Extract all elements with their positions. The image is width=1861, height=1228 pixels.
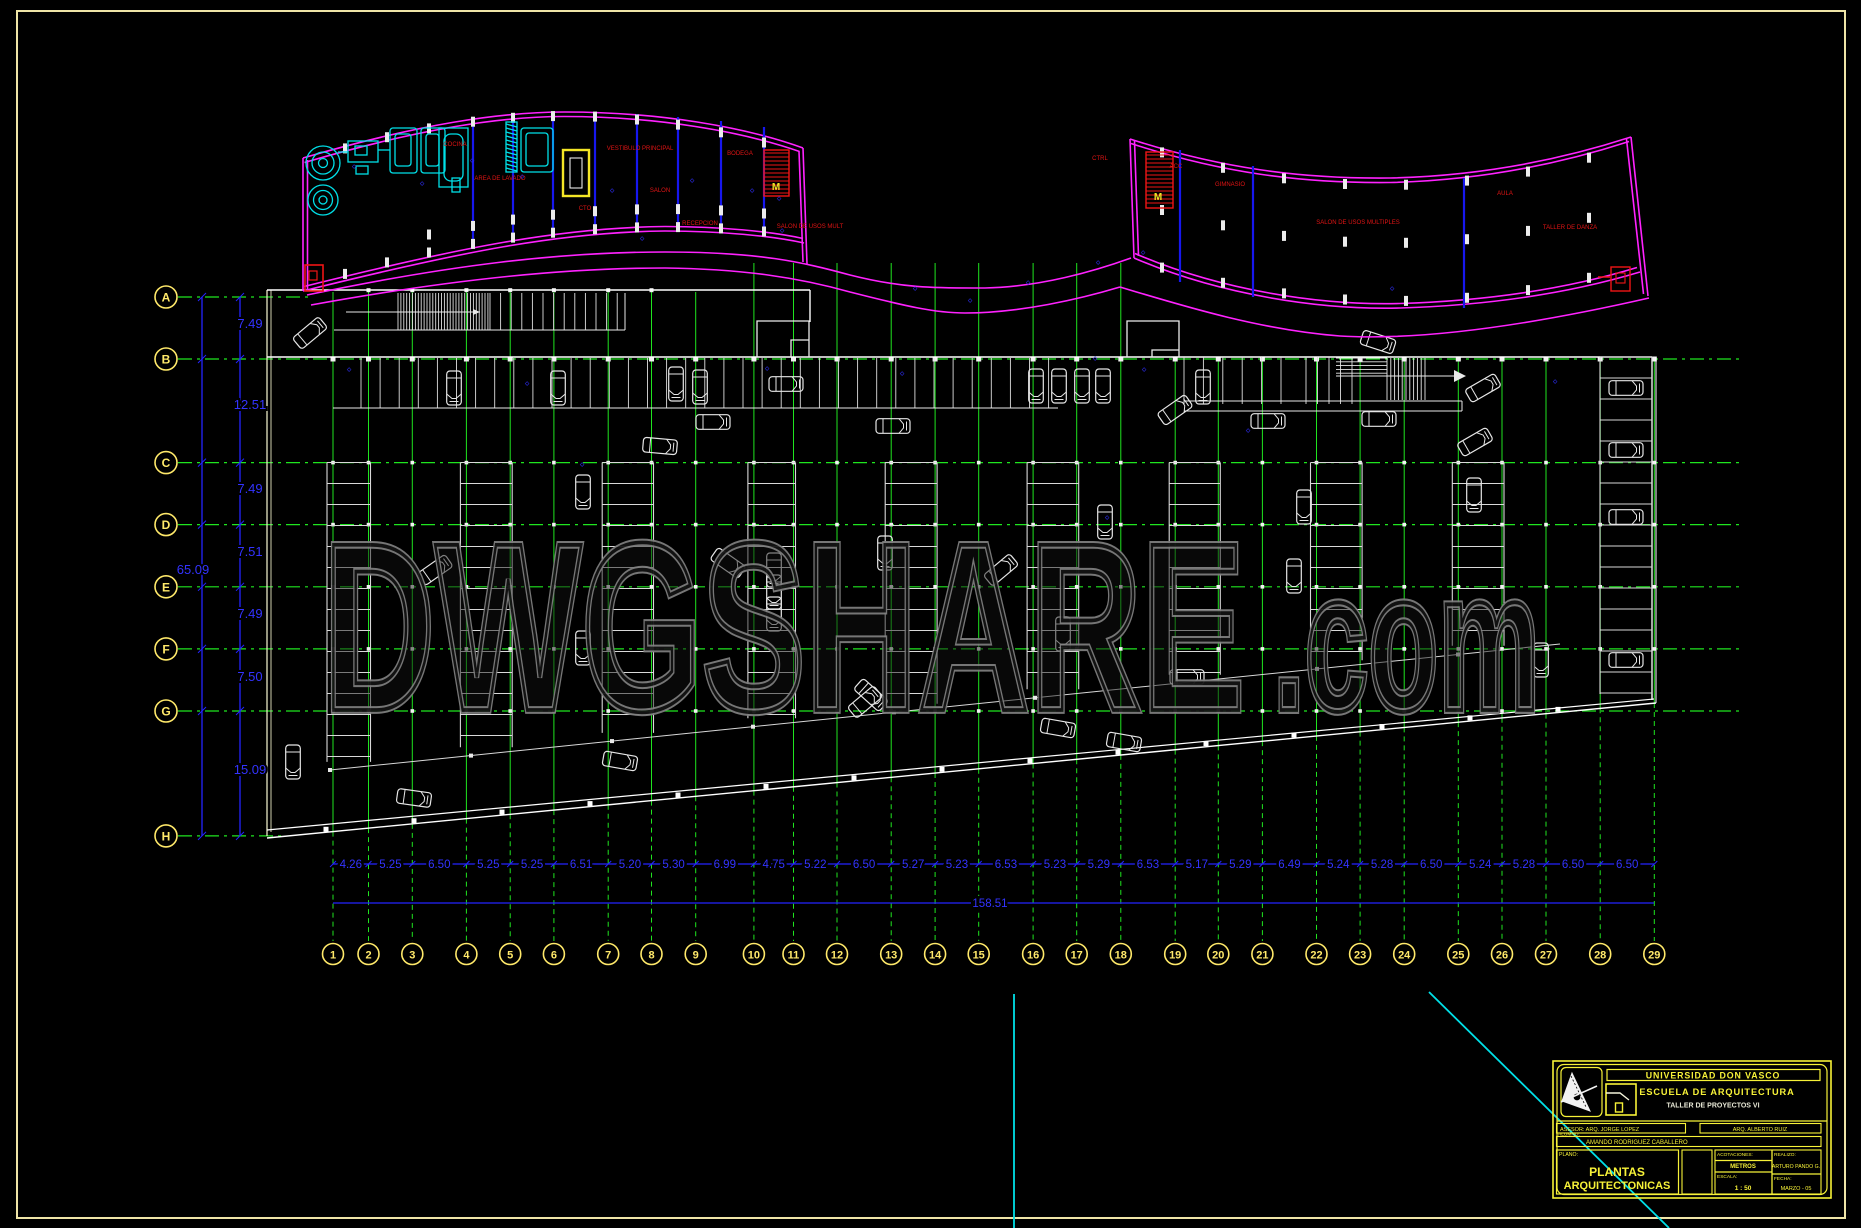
svg-text:◇: ◇ [779, 227, 785, 234]
svg-text:6.53: 6.53 [995, 859, 1017, 871]
svg-text:FECHA:: FECHA: [1774, 1176, 1792, 1182]
svg-text:18: 18 [1115, 950, 1127, 962]
svg-text:29: 29 [1648, 950, 1660, 962]
svg-text:23: 23 [1354, 950, 1366, 962]
svg-text:5.29: 5.29 [1229, 859, 1251, 871]
svg-text:12.51: 12.51 [234, 397, 267, 412]
svg-text:7.49: 7.49 [237, 481, 262, 496]
svg-text:6.50: 6.50 [1420, 859, 1442, 871]
svg-text:6: 6 [551, 950, 557, 962]
svg-text:1: 1 [330, 950, 336, 962]
svg-text:16: 16 [1027, 950, 1039, 962]
svg-text:12: 12 [831, 950, 843, 962]
svg-text:20: 20 [1212, 950, 1224, 962]
svg-text:5.23: 5.23 [946, 859, 968, 871]
svg-text:SALON: SALON [650, 188, 670, 194]
svg-text:M: M [1154, 192, 1162, 203]
svg-text:AULA: AULA [1497, 191, 1513, 197]
svg-text:◇: ◇ [967, 297, 973, 304]
svg-text:5.25: 5.25 [477, 859, 499, 871]
svg-text:SALON DE USOS MULTIPLES: SALON DE USOS MULTIPLES [1316, 220, 1400, 226]
svg-text:◇: ◇ [749, 187, 755, 194]
svg-text:6.51: 6.51 [570, 859, 592, 871]
svg-text:6.49: 6.49 [1278, 859, 1300, 871]
svg-text:ESCUELA DE ARQUITECTURA: ESCUELA DE ARQUITECTURA [1639, 1087, 1794, 1097]
svg-text:9: 9 [693, 950, 699, 962]
svg-text:5.25: 5.25 [521, 859, 543, 871]
svg-text:4: 4 [463, 950, 470, 962]
svg-text:65.09: 65.09 [177, 562, 210, 577]
svg-text:◇: ◇ [899, 370, 905, 377]
svg-text:G: G [161, 705, 170, 719]
svg-text:25: 25 [1452, 950, 1464, 962]
svg-text:19: 19 [1169, 950, 1181, 962]
svg-text:◇: ◇ [1092, 355, 1098, 362]
svg-text:◇: ◇ [1141, 366, 1147, 373]
svg-text:5.30: 5.30 [662, 859, 684, 871]
svg-text:13: 13 [885, 950, 897, 962]
svg-text:◇: ◇ [524, 380, 530, 387]
svg-text:REALIZO:: REALIZO: [1774, 1152, 1796, 1158]
svg-text:ARTURO PANDO G.: ARTURO PANDO G. [1772, 1164, 1820, 1170]
svg-text:D: D [162, 518, 171, 532]
svg-text:TALLER DE PROYECTOS VI: TALLER DE PROYECTOS VI [1666, 1103, 1759, 1110]
svg-text:E: E [162, 580, 170, 594]
svg-text:AMANDO RODRIGUEZ CABALLERO: AMANDO RODRIGUEZ CABALLERO [1586, 1140, 1688, 1146]
svg-text:5.23: 5.23 [1044, 859, 1066, 871]
svg-text:6.53: 6.53 [1137, 859, 1159, 871]
svg-text:6.50: 6.50 [853, 859, 875, 871]
svg-text:◇: ◇ [351, 163, 357, 170]
svg-text:7.49: 7.49 [237, 606, 262, 621]
svg-text:DWGSHARE: DWGSHARE [323, 493, 1245, 761]
svg-text:5.29: 5.29 [1088, 859, 1110, 871]
svg-text:ESCALA:: ESCALA: [1717, 1174, 1737, 1180]
svg-text:ARQ. ALBERTO RUIZ: ARQ. ALBERTO RUIZ [1733, 1127, 1788, 1133]
svg-text:21: 21 [1256, 950, 1268, 962]
svg-text:5.27: 5.27 [902, 859, 924, 871]
svg-text:5.25: 5.25 [379, 859, 401, 871]
svg-text:24: 24 [1398, 950, 1411, 962]
svg-text:6.99: 6.99 [714, 859, 736, 871]
svg-text:◇: ◇ [764, 365, 770, 372]
svg-text:4.75: 4.75 [763, 859, 785, 871]
svg-text:5: 5 [507, 950, 513, 962]
svg-text:◇: ◇ [1140, 249, 1146, 256]
svg-text:METROS: METROS [1730, 1164, 1756, 1170]
svg-text:6.50: 6.50 [428, 859, 450, 871]
svg-text:◇: ◇ [689, 177, 695, 184]
svg-text:7: 7 [605, 950, 611, 962]
svg-text:COCINA: COCINA [443, 142, 466, 148]
svg-text:5.24: 5.24 [1327, 859, 1350, 871]
svg-text:◇: ◇ [1389, 285, 1395, 292]
svg-text:ALUMNO:: ALUMNO: [1558, 1132, 1580, 1138]
svg-text:4.26: 4.26 [340, 859, 362, 871]
svg-text:H: H [162, 829, 171, 843]
svg-text:CTRL: CTRL [1092, 156, 1108, 162]
svg-text:ARQUITECTONICAS: ARQUITECTONICAS [1564, 1180, 1671, 1192]
svg-text:28: 28 [1594, 950, 1606, 962]
svg-text:11: 11 [788, 950, 800, 962]
svg-text:MARZO - 05: MARZO - 05 [1781, 1186, 1812, 1192]
svg-text:◇: ◇ [579, 461, 585, 468]
svg-text:10: 10 [748, 950, 760, 962]
svg-text:◇: ◇ [469, 157, 475, 164]
svg-text:BODEGA: BODEGA [727, 151, 753, 157]
svg-text:14: 14 [929, 950, 942, 962]
svg-text:6.50: 6.50 [1616, 859, 1638, 871]
svg-text:5.28: 5.28 [1513, 859, 1535, 871]
svg-text:B: B [162, 353, 171, 367]
svg-text:PLANTAS: PLANTAS [1589, 1165, 1645, 1179]
svg-text:◇: ◇ [912, 285, 918, 292]
svg-text:158.51: 158.51 [972, 898, 1007, 910]
svg-text:17: 17 [1071, 950, 1083, 962]
svg-text:ACOTACIONES:: ACOTACIONES: [1717, 1152, 1753, 1158]
svg-text:M: M [772, 182, 780, 193]
svg-text:ACC: ACC [1170, 164, 1183, 170]
svg-text:5.17: 5.17 [1186, 859, 1208, 871]
svg-text:UNIVERSIDAD DON VASCO: UNIVERSIDAD DON VASCO [1646, 1071, 1781, 1081]
svg-text:◇: ◇ [419, 180, 425, 187]
svg-text:26: 26 [1496, 950, 1508, 962]
svg-text:6.50: 6.50 [1562, 859, 1584, 871]
svg-text:◇: ◇ [776, 195, 782, 202]
svg-text:22: 22 [1310, 950, 1322, 962]
svg-text:AREA DE LAVADO: AREA DE LAVADO [474, 176, 525, 182]
svg-text:1 : 50: 1 : 50 [1735, 1185, 1752, 1192]
svg-text:◇: ◇ [1245, 427, 1251, 434]
svg-text:C: C [162, 456, 171, 470]
svg-text:PLANO:: PLANO: [1559, 1152, 1578, 1158]
svg-text:SALON DE USOS MULT: SALON DE USOS MULT [777, 224, 844, 230]
svg-text:◇: ◇ [1025, 279, 1031, 286]
svg-text:F: F [162, 642, 169, 656]
svg-text:TALLER DE DANZA: TALLER DE DANZA [1543, 225, 1597, 231]
svg-text:8: 8 [648, 950, 654, 962]
svg-text:◇: ◇ [1095, 259, 1101, 266]
svg-text:GIMNASIO: GIMNASIO [1215, 182, 1245, 188]
svg-text:◇: ◇ [1552, 378, 1558, 385]
svg-text:15.09: 15.09 [234, 762, 267, 777]
svg-text:2: 2 [365, 950, 371, 962]
svg-text:RECEPCION: RECEPCION [682, 221, 718, 227]
svg-text:5.20: 5.20 [619, 859, 641, 871]
svg-text:5.24: 5.24 [1469, 859, 1492, 871]
svg-text:5.28: 5.28 [1371, 859, 1393, 871]
svg-text:7.49: 7.49 [237, 316, 262, 331]
svg-text:◇: ◇ [609, 187, 615, 194]
svg-text:27: 27 [1540, 950, 1552, 962]
svg-text:7.51: 7.51 [237, 544, 262, 559]
svg-text:◇: ◇ [639, 235, 645, 242]
svg-text:VESTIBULO PRINCIPAL: VESTIBULO PRINCIPAL [607, 146, 674, 152]
svg-text:◇: ◇ [346, 366, 352, 373]
svg-text:CTO: CTO [579, 206, 592, 212]
svg-text:.com: .com [1273, 530, 1540, 753]
svg-text:15: 15 [973, 950, 985, 962]
svg-text:7.50: 7.50 [237, 669, 262, 684]
svg-text:A: A [162, 291, 171, 305]
svg-text:◇: ◇ [519, 173, 525, 180]
svg-text:3: 3 [409, 950, 415, 962]
svg-text:5.22: 5.22 [804, 859, 826, 871]
